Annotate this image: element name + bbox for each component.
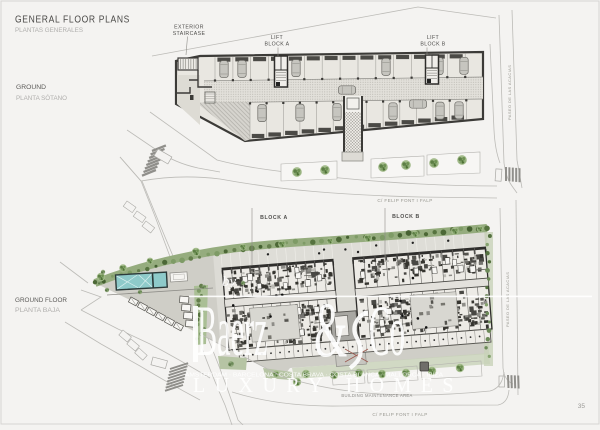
svg-text:C/ FELIP FONT I FALP: C/ FELIP FONT I FALP [377,198,432,203]
svg-text:35: 35 [578,403,586,410]
svg-text:C/ FELIP FONT I FALP: C/ FELIP FONT I FALP [372,412,427,417]
svg-text:PASEO DE LAS ACACIAS: PASEO DE LAS ACACIAS [505,272,510,327]
svg-text:PLANTA SÓTANO: PLANTA SÓTANO [16,93,67,102]
svg-text:PLANTAS GENERALES: PLANTAS GENERALES [15,27,83,34]
svg-text:GROUND FLOOR: GROUND FLOOR [15,297,67,304]
svg-text:GENERAL FLOOR PLANS: GENERAL FLOOR PLANS [15,14,130,26]
svg-text:PLANTA BAJA: PLANTA BAJA [15,307,61,314]
svg-text:BLOCK A: BLOCK A [260,215,288,221]
svg-text:PASEO DE LAS ACACIAS: PASEO DE LAS ACACIAS [507,65,512,120]
svg-text:by: by [222,274,237,290]
svg-text:STAIRCASE: STAIRCASE [173,31,206,37]
svg-text:BLOCK B: BLOCK B [420,42,445,48]
svg-text:LIFT: LIFT [271,35,284,41]
svg-text:LIFT: LIFT [427,35,440,41]
svg-text:&: & [314,287,347,374]
svg-text:LUXURY HOMES: LUXURY HOMES [193,373,463,397]
svg-text:Baerz: Baerz [197,291,267,371]
svg-text:Co: Co [369,291,405,370]
svg-text:GROUND: GROUND [16,84,46,91]
svg-text:BLOCK A: BLOCK A [264,42,289,48]
svg-text:EXTERIOR: EXTERIOR [174,25,204,31]
svg-text:BLOCK B: BLOCK B [392,214,420,220]
